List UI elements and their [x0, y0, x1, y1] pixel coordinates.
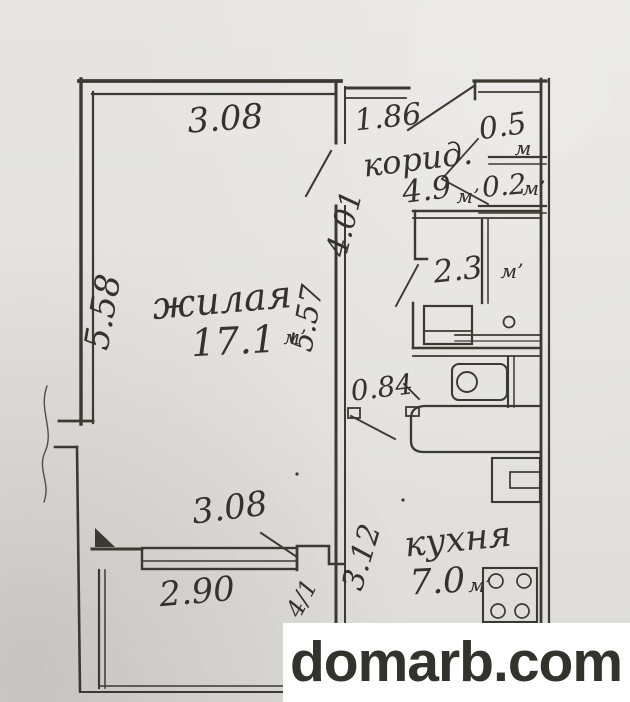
watermark: domarb.com [283, 623, 630, 702]
stove-burner [517, 574, 531, 588]
closet-small-unit: м’ [523, 176, 546, 200]
corridor-unit: м’ [457, 184, 480, 208]
bathroom-unit: м’ [501, 259, 524, 283]
dim-balcony-width: 2.90 [157, 569, 237, 616]
balcony-door-swing [261, 533, 297, 557]
kitchen-unit: м’ [469, 573, 492, 597]
fridge-inner [510, 472, 541, 488]
wall-left-lower [77, 447, 80, 691]
labels: 3.08 1.86 0.5 м корид. 4.9 м’ 0.2 м’ 4.0… [77, 96, 546, 622]
bathtub-fixture [411, 406, 539, 452]
living-unit: м’ [284, 325, 307, 349]
dim-corridor-height: 4.01 [319, 187, 369, 261]
bathroom-door-swing [396, 265, 418, 306]
toilet-fixture [452, 364, 507, 400]
dim-kitchen-height: 3.12 [335, 520, 388, 594]
watermark-text: domarb.com [290, 630, 622, 694]
window [142, 548, 297, 569]
closet-small-area: 0.2 [481, 167, 528, 204]
pen-dot [295, 472, 298, 475]
corner-hatch [95, 528, 115, 547]
living-area: 17.1 [190, 317, 277, 365]
toilet-bowl [457, 372, 477, 392]
kitchen-area: 7.0 [409, 561, 467, 604]
door-mark: 4/1 [280, 575, 323, 623]
knob-circle [504, 317, 515, 328]
dim-passage-width: 0.84 [349, 367, 415, 407]
fridge-fixture [492, 458, 540, 502]
sink-fixture [424, 306, 472, 344]
room-label-kitchen: кухня [402, 515, 513, 566]
dim-corridor-top-width: 1.86 [353, 97, 423, 139]
window-block [142, 548, 297, 569]
dim-living-bottom-width: 3.08 [190, 484, 270, 533]
floor-plan-photo: 3.08 1.86 0.5 м корид. 4.9 м’ 0.2 м’ 4.0… [0, 0, 630, 702]
pen-dot [401, 498, 404, 501]
dim-living-left-height: 5.58 [77, 271, 130, 352]
dim-living-top-width: 3.08 [186, 96, 264, 141]
pen-squiggle [42, 386, 48, 502]
living-door-swing [306, 151, 331, 196]
stove-burner [491, 604, 505, 618]
wc-door-swing [351, 416, 395, 439]
corridor-area: 4.9 [399, 169, 453, 211]
bathroom-area: 2.3 [431, 250, 485, 291]
closet-large-unit: м [515, 136, 532, 160]
floor-plan-drawing: 3.08 1.86 0.5 м корид. 4.9 м’ 0.2 м’ 4.0… [0, 0, 630, 702]
stove-burner [515, 604, 529, 618]
